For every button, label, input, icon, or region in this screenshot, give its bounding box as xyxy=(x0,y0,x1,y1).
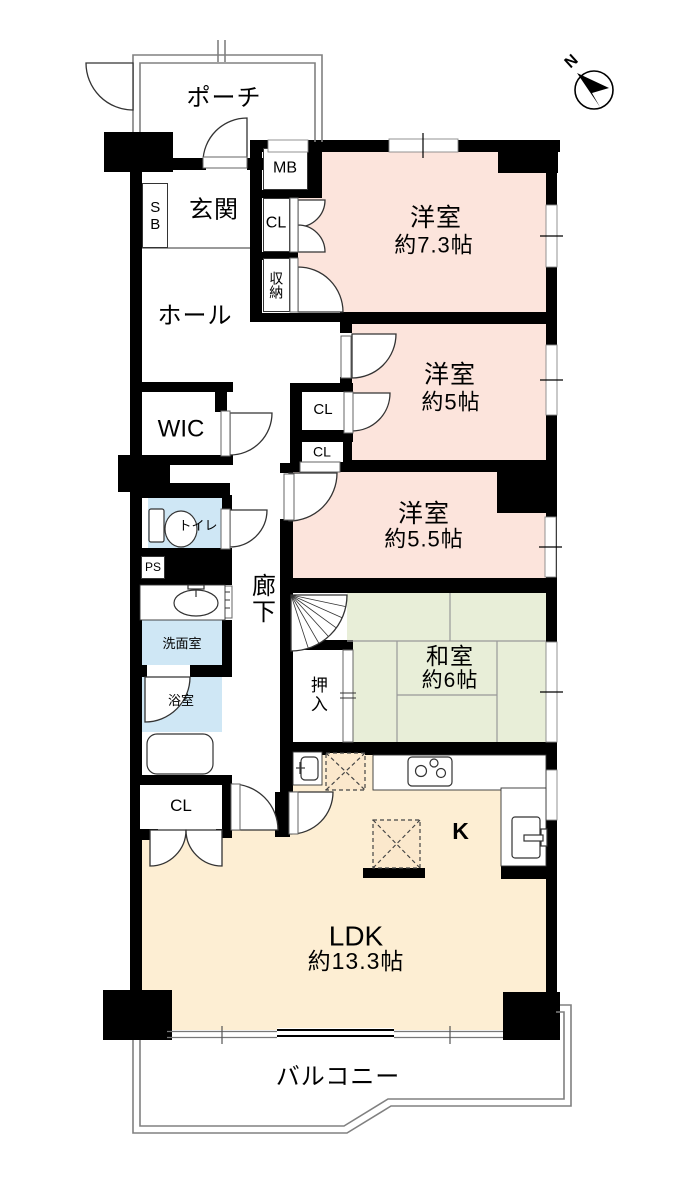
label-closet-w3: CL xyxy=(313,445,331,460)
compass-icon xyxy=(575,71,613,109)
stove-icon xyxy=(408,757,452,786)
label-western1-name: 洋室 xyxy=(410,205,462,231)
western3-entry-door xyxy=(289,473,337,521)
ldk-window-band xyxy=(167,1026,503,1044)
japanese-room-door xyxy=(291,595,347,651)
label-closet-ldk: CL xyxy=(170,797,192,815)
door-leaves xyxy=(203,157,356,834)
closet-w2-door xyxy=(352,393,390,431)
label-wic: WIC xyxy=(158,418,205,443)
label-ldk-size: 約13.3帖 xyxy=(308,950,405,974)
label-hall: ホール xyxy=(158,305,233,330)
label-western3-size: 約5.5帖 xyxy=(384,529,464,552)
label-meter-box: MB xyxy=(273,161,297,178)
toilet-door xyxy=(230,510,267,547)
closet-ldk-door-left xyxy=(150,830,186,866)
floor-plan: ポーチ 玄関 SB MB CL 収納 ホール 洋室 約7.3帖 洋室 約5帖 C… xyxy=(0,0,689,1180)
linework-layer xyxy=(0,0,689,1180)
label-shoe-box: SB xyxy=(147,199,163,233)
label-pipe-space: PS xyxy=(145,561,161,573)
label-kitchen: K xyxy=(452,820,470,844)
label-bathroom: 浴室 xyxy=(168,694,194,708)
label-western2-name: 洋室 xyxy=(424,362,476,388)
label-balcony: バルコニー xyxy=(276,1066,401,1091)
label-corridor: 廊下 xyxy=(248,573,273,625)
label-japanese-name: 和室 xyxy=(426,645,474,669)
closet-ldk-door-right xyxy=(186,830,222,866)
label-ldk-name: LDK xyxy=(329,921,383,950)
wic-door xyxy=(230,413,272,455)
porch-gate-door xyxy=(86,63,133,110)
label-porch: ポーチ xyxy=(187,87,262,112)
western2-entry-door xyxy=(352,334,396,378)
closet-entrance-door-b xyxy=(298,225,325,252)
door-arcs xyxy=(86,63,396,866)
washbasin-icon xyxy=(140,585,225,620)
closet-entrance-door-a xyxy=(298,200,325,227)
entrance-door xyxy=(203,118,247,162)
label-entrance: 玄関 xyxy=(189,199,239,224)
label-oshiire: 押入 xyxy=(308,676,326,714)
label-western3-name: 洋室 xyxy=(398,501,450,527)
label-washroom: 洗面室 xyxy=(162,637,201,651)
bathtub-icon xyxy=(147,734,213,774)
storage-door xyxy=(298,267,343,312)
label-closet-entrance: CL xyxy=(266,216,286,233)
kitchen-counter-top xyxy=(373,755,546,790)
label-japanese-size: 約6帖 xyxy=(422,670,479,692)
hand-sink-icon xyxy=(293,752,322,785)
label-closet-w2: CL xyxy=(313,402,332,418)
label-toilet: トイレ xyxy=(178,519,217,533)
label-western2-size: 約5帖 xyxy=(421,392,480,415)
label-storage: 収納 xyxy=(269,271,284,299)
label-western1-size: 約7.3帖 xyxy=(394,235,474,258)
